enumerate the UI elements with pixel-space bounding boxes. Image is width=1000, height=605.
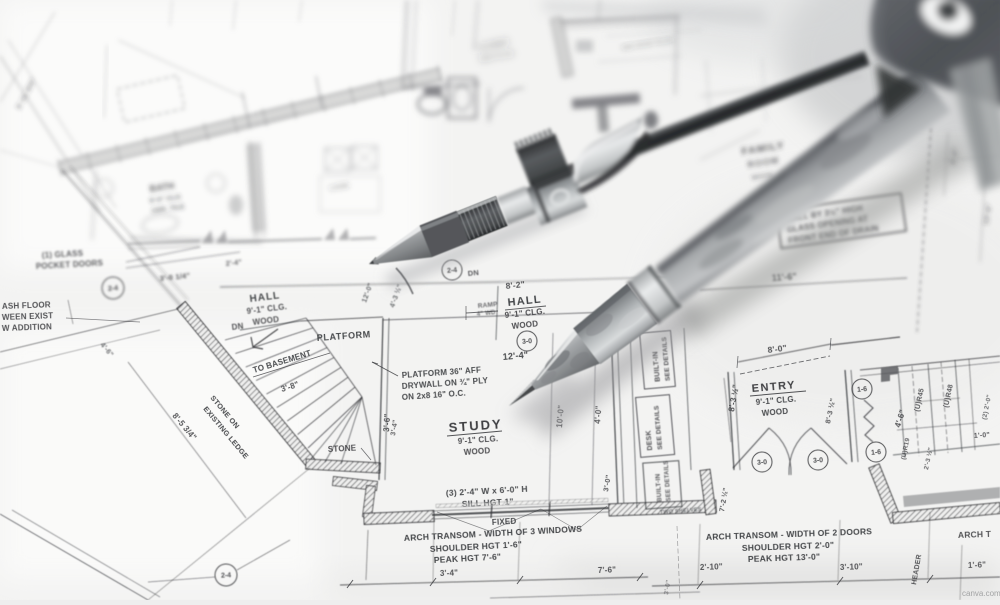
svg-text:ARCH T: ARCH T bbox=[958, 529, 992, 540]
svg-text:2-4: 2-4 bbox=[108, 285, 119, 293]
svg-text:1'-0": 1'-0" bbox=[974, 432, 991, 440]
svg-text:WOOD: WOOD bbox=[464, 446, 491, 457]
svg-text:2'-10": 2'-10" bbox=[700, 562, 723, 572]
svg-text:2-4: 2-4 bbox=[221, 572, 232, 580]
svg-text:FIXED: FIXED bbox=[492, 517, 517, 527]
svg-text:canva.com: canva.com bbox=[962, 589, 1000, 598]
svg-text:ASH FLOOR: ASH FLOOR bbox=[2, 300, 51, 311]
svg-text:3'-4": 3'-4" bbox=[440, 568, 459, 578]
svg-text:3-0: 3-0 bbox=[522, 338, 533, 346]
svg-text:1-6: 1-6 bbox=[857, 386, 868, 394]
svg-text:3-0: 3-0 bbox=[757, 459, 768, 467]
svg-text:STONE: STONE bbox=[328, 443, 357, 453]
svg-text:4'-0": 4'-0" bbox=[593, 405, 604, 424]
svg-text:7'-6": 7'-6" bbox=[598, 565, 617, 575]
svg-text:DN: DN bbox=[231, 322, 244, 332]
svg-text:2-4: 2-4 bbox=[447, 267, 458, 275]
svg-text:1'-6": 1'-6" bbox=[968, 560, 987, 570]
svg-text:DN: DN bbox=[467, 268, 479, 278]
svg-text:W ADDITION: W ADDITION bbox=[2, 322, 52, 333]
svg-text:3-0: 3-0 bbox=[813, 457, 824, 465]
svg-text:3'-10": 3'-10" bbox=[840, 562, 863, 572]
svg-text:WEEN EXIST: WEEN EXIST bbox=[2, 311, 54, 322]
svg-text:8'-2": 8'-2" bbox=[505, 279, 525, 291]
svg-text:1-6: 1-6 bbox=[871, 449, 882, 457]
